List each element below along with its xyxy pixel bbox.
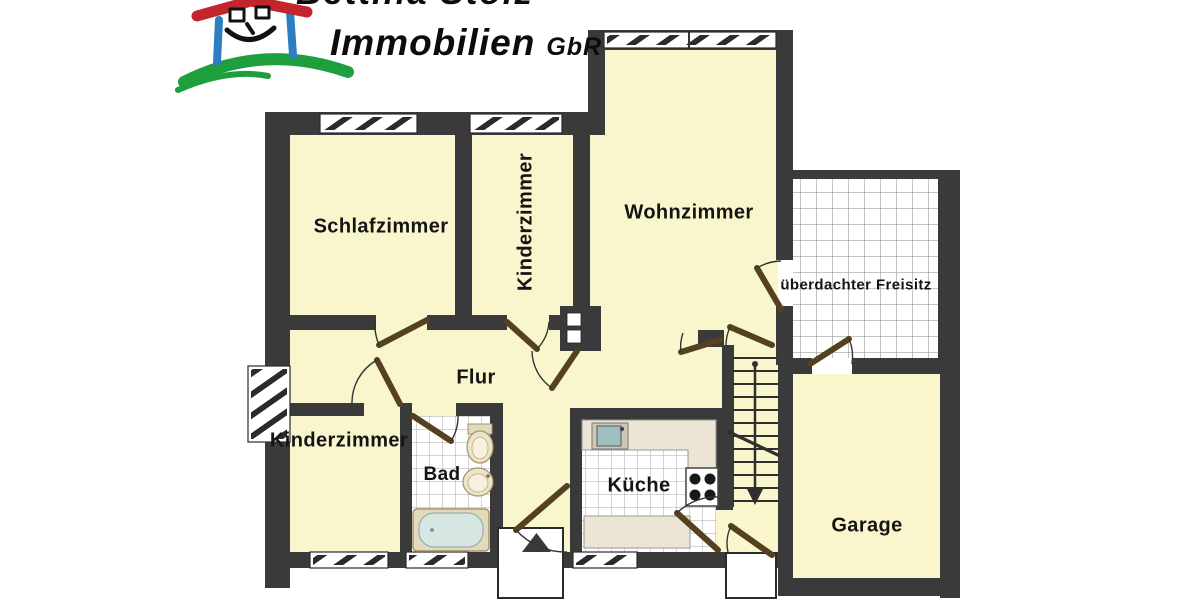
- room-label-garage: Garage: [831, 515, 902, 538]
- logo-company-name-text: Bettina Stolz: [296, 0, 534, 12]
- wall-childroom2-top: [290, 403, 364, 416]
- room-label-wohnzimmer: Wohnzimmer: [624, 202, 753, 225]
- kitchen-counter-bottom: [584, 516, 690, 548]
- wall-kitchen-left: [570, 408, 582, 552]
- window-kitchen-bottom: [573, 552, 637, 568]
- room-label-kueche: Küche: [607, 475, 670, 498]
- wall-bedroom-divider: [455, 135, 472, 317]
- stove: [686, 468, 718, 506]
- toilet: [467, 424, 493, 463]
- room-label-freisitz: überdachter Freisitz: [780, 277, 931, 294]
- logo-house-wall-right: [290, 12, 293, 55]
- room-label-flur: Flur: [456, 367, 495, 390]
- washbasin: [463, 468, 493, 496]
- wall-hall-north-a: [290, 315, 376, 330]
- logo-house-roof-icon: [197, 1, 307, 16]
- wall-childroom-livingroom-divider: [573, 135, 590, 308]
- wall-freisitz-top: [793, 170, 960, 179]
- wall-stairs-garage-left: [778, 306, 793, 578]
- wall-freisitz-right: [938, 170, 960, 370]
- window-childroom2-bottom: [310, 552, 388, 568]
- agency-logo: Immobilien GbR: [330, 22, 602, 64]
- window-bath-bottom: [406, 552, 468, 568]
- floor-plan-page: Bettina Stolz Immobilien GbR Schlafzimme…: [0, 0, 1200, 600]
- front-entrance-porch: [498, 528, 563, 598]
- wall-garage-bottom: [778, 578, 960, 596]
- floor-plan-drawing: [0, 0, 1200, 600]
- room-label-bad: Bad: [423, 464, 460, 486]
- wall-outer-left: [265, 112, 290, 588]
- logo-house-eye-right: [256, 7, 269, 18]
- logo-company-name-cutoff: Bettina Stolz: [296, 0, 616, 12]
- wall-hall-north-b: [427, 315, 507, 330]
- kitchen-sink: [592, 423, 628, 449]
- logo-suffix-text: GbR: [546, 33, 602, 62]
- wall-garage-right: [940, 366, 960, 598]
- room-label-schlafzimmer: Schlafzimmer: [314, 216, 449, 239]
- window-childroom-top: [470, 114, 562, 133]
- room-label-kinderzimmer-bottom: Kinderzimmer: [270, 430, 408, 453]
- logo-house-eye-left: [230, 9, 244, 21]
- logo-house-wall-left: [217, 20, 219, 62]
- wall-kitchen-top: [570, 408, 733, 420]
- bathtub: [413, 509, 489, 551]
- logo-brand-text: Immobilien: [330, 22, 535, 64]
- side-entrance-porch: [726, 553, 776, 598]
- wall-childroom2-bath-divider: [400, 403, 412, 552]
- window-livingroom-top: [604, 32, 776, 48]
- logo-house-nose: [247, 24, 253, 33]
- room-label-kinderzimmer-top: Kinderzimmer: [515, 153, 538, 291]
- wall-livingroom-right-upper: [776, 30, 793, 260]
- agency-logo-drawing: [178, 1, 348, 90]
- window-bedroom-top: [320, 114, 417, 133]
